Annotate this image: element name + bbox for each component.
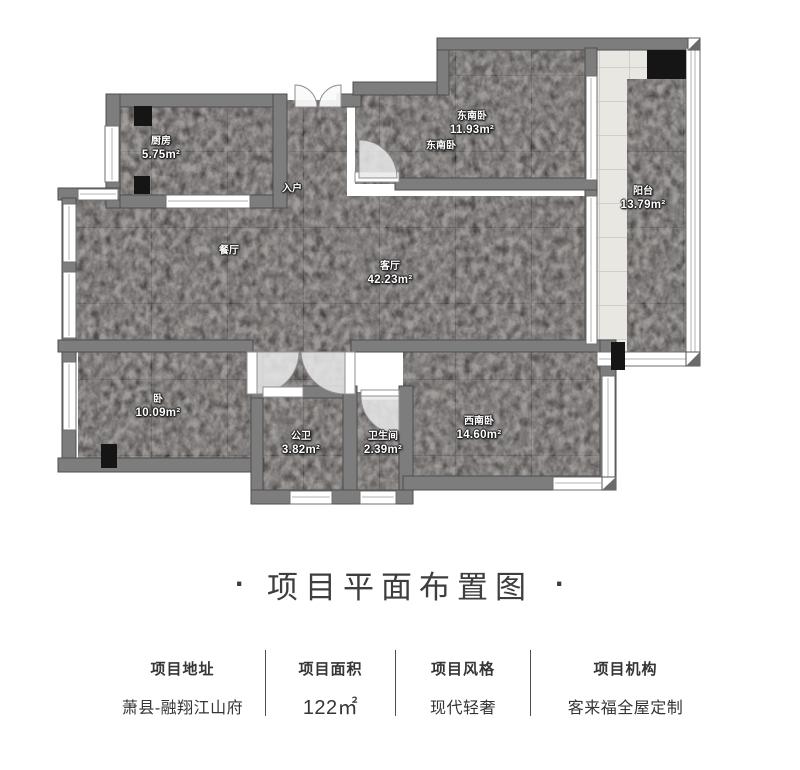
floor-plan: 厨房 5.75m² 入户 东南卧 11.93m² 东南卧 阳台 13.79m² … xyxy=(0,0,800,540)
title-right-dot: · xyxy=(555,568,565,601)
room-label-living: 客厅 42.23m² xyxy=(368,260,413,288)
poster: 厨房 5.75m² 入户 东南卧 11.93m² 东南卧 阳台 13.79m² … xyxy=(0,0,800,770)
entry-door-arc xyxy=(295,85,317,107)
door-leaf xyxy=(345,352,355,394)
room-label-kitchen: 厨房 5.75m² xyxy=(142,135,180,163)
door-leaf xyxy=(263,387,303,397)
room-label-entry: 入户 xyxy=(282,183,302,196)
room-label-southeast-bedroom: 东南卧 11.93m² xyxy=(450,110,494,138)
title-text: 项目平面布置图 xyxy=(267,570,533,605)
room-label-southeast-bedroom-2: 东南卧 xyxy=(426,140,456,153)
page-title: ·项目平面布置图· xyxy=(0,562,800,607)
info-area: 项目面积 122㎡ xyxy=(265,650,395,716)
project-info: 项目地址 萧县-融翔江山府 项目面积 122㎡ 项目风格 现代轻奢 项目机构 客… xyxy=(100,650,720,716)
info-address: 项目地址 萧县-融翔江山府 xyxy=(100,650,265,716)
room-label-bathroom: 卫生间 2.39m² xyxy=(364,430,402,458)
room-label-bedroom: 卧 10.09m² xyxy=(136,393,181,421)
door-leaf xyxy=(247,352,257,394)
title-left-dot: · xyxy=(235,568,245,601)
room-label-balcony: 阳台 13.79m² xyxy=(621,185,666,213)
room-label-southwest-bedroom: 西南卧 14.60m² xyxy=(457,415,502,443)
info-style: 项目风格 现代轻奢 xyxy=(395,650,530,716)
room-label-dining: 餐厅 xyxy=(219,245,239,258)
entry-door-arc xyxy=(319,85,341,107)
room-label-public-bath: 公卫 3.82m² xyxy=(282,430,320,458)
info-agency: 项目机构 客来福全屋定制 xyxy=(530,650,720,716)
